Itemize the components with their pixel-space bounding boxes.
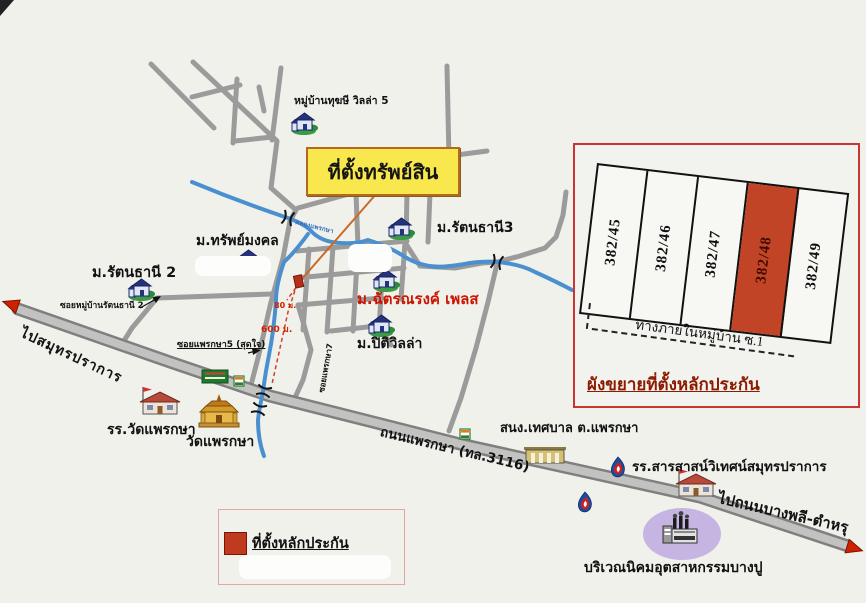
label-wat-phraeksa-school: รร.วัดแพรกษา — [107, 423, 196, 438]
label-rattanathani2: ม.รัตนธานี 2 — [92, 266, 176, 282]
road-segment — [259, 87, 264, 111]
road-segment — [356, 193, 358, 247]
legend-label: ที่ตั้งหลักประกัน — [252, 532, 349, 555]
scan-corner-mark — [0, 0, 14, 16]
house-icon — [368, 315, 396, 337]
map-page: หมู่บ้านทุฆษี วิลล่า 5 ม.ทรัพย์มงคล ม.รั… — [0, 0, 866, 603]
label-soi-phraeksa5: ซอยแพรกษา5 (สุดใจ) — [177, 341, 265, 351]
house-icon — [373, 270, 401, 292]
label-soi-rattanathani2: ซอยหมู่บ้านรัตนธานี 2 — [60, 302, 144, 311]
label-distance-600m: 600 ม. — [261, 326, 292, 336]
whiteout-patch — [239, 555, 391, 579]
road-segment — [293, 305, 311, 402]
road-segment — [428, 193, 430, 242]
label-wat-phraeksa: วัดแพรกษา — [186, 435, 254, 450]
plot-number: 382/48 — [753, 235, 776, 284]
property-location-banner: ที่ตั้งทรัพย์สิน — [306, 147, 460, 196]
plot-number: 382/49 — [803, 241, 826, 290]
street-network — [122, 62, 566, 431]
plot-number: 382/45 — [603, 217, 626, 266]
road-arrow-icon — [845, 539, 864, 557]
label-municipal-office: สนง.เทศบาล ต.แพรกษา — [500, 422, 638, 436]
inset-caption: ผังขยายที่ตั้งหลักประกัน — [587, 371, 760, 398]
temple-icon — [199, 394, 239, 427]
plot-block: 382/45 382/46 382/47 382/48 382/49 — [579, 163, 849, 344]
convenience-store-icon — [234, 376, 244, 386]
label-sarasas-school: รร.สารสาสน์วิเทศน์สมุทรปราการ — [632, 460, 827, 475]
label-chatnarong-place: ม.ฉัตรณรงค์ เพลส — [357, 291, 479, 308]
whiteout-patch — [348, 244, 392, 272]
plot-number: 382/47 — [703, 229, 726, 278]
label-village-villa5: หมู่บ้านทุฆษี วิลล่า 5 — [294, 96, 389, 108]
gas-station-icon — [578, 492, 591, 512]
label-sap-mongkol: ม.ทรัพย์มงคล — [196, 234, 279, 249]
label-piti-villa: ม.ปิติวิลล่า — [357, 337, 422, 352]
plot-number: 382/46 — [653, 223, 676, 272]
inset-collateral-plan: 382/45 382/46 382/47 382/48 382/49 ทางภา… — [573, 143, 860, 408]
house-icon — [128, 279, 156, 301]
label-rattanathani3: ม.รัตนธานี3 — [437, 221, 513, 236]
gas-station-icon — [611, 457, 624, 477]
road-segment — [235, 137, 272, 141]
school-icon — [140, 387, 180, 414]
convenience-store-icon — [460, 429, 470, 439]
road-segment — [272, 68, 281, 140]
label-distance-80m: 80 ม. — [274, 302, 296, 311]
legend-color-swatch — [224, 532, 247, 555]
whiteout-patch — [195, 256, 271, 276]
road-segment — [122, 294, 271, 344]
green-sign-icon — [202, 370, 228, 383]
house-icon — [291, 113, 319, 135]
house-icon — [388, 218, 416, 240]
road-segment — [447, 66, 487, 160]
legend-box: ที่ตั้งหลักประกัน — [218, 509, 405, 585]
label-bang-pu-industrial: บริเวณนิคมอุตสาหกรรมบางปู — [584, 561, 763, 576]
